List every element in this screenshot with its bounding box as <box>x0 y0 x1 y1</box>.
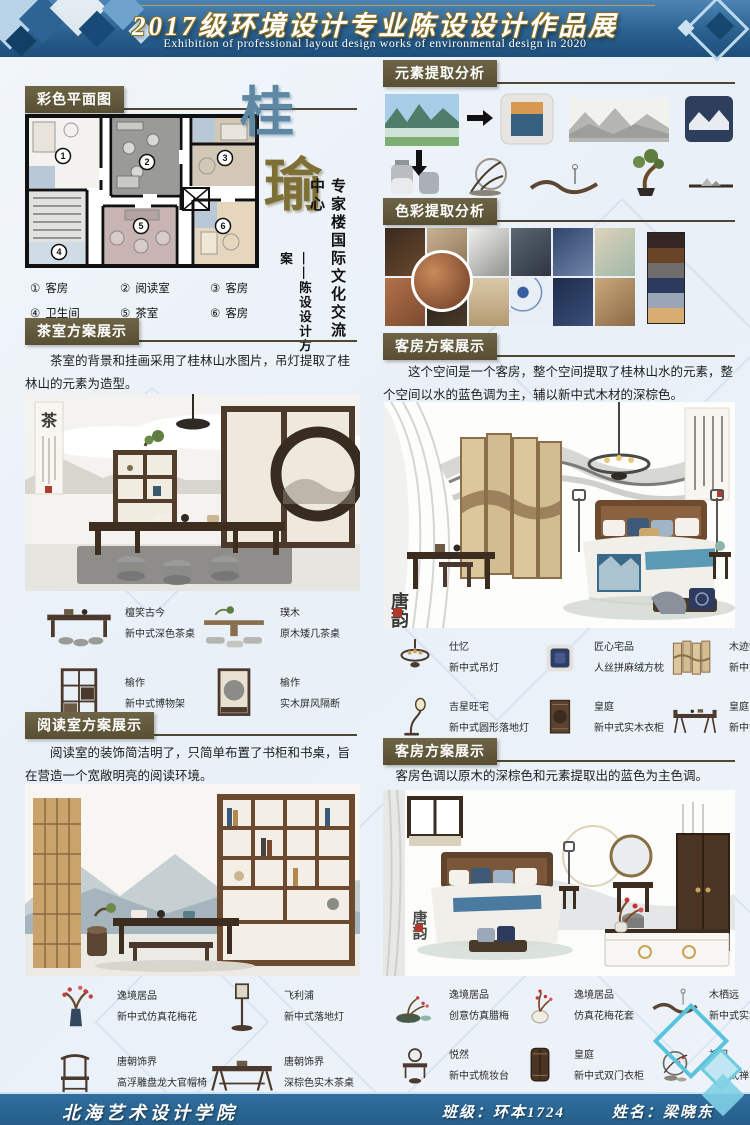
furniture-brand: 皇庭 <box>574 1045 644 1066</box>
furniture-brand: 匠心宅品 <box>594 637 664 658</box>
poster-page: 2017级环境设计专业陈设设计作品展 Exhibition of profess… <box>0 0 750 1125</box>
section-tag: 客房方案展示 <box>383 738 497 765</box>
furniture-brand: 木迹制品 <box>729 637 750 658</box>
furniture-item: 仕忆 新中式吊灯 <box>388 634 529 682</box>
folding-screen-icon <box>668 634 722 682</box>
section-tag: 色彩提取分析 <box>383 198 497 225</box>
furniture-item: 匠心宅品 人丝拼麻绒方枕 <box>533 634 664 682</box>
furniture-name: 高浮雕盘龙大官帽椅 <box>117 1073 207 1094</box>
furniture-brand: 逸境居品 <box>574 985 634 1006</box>
furniture-name: 人丝拼麻绒方枕 <box>594 658 664 679</box>
furniture-item: 吉星旺宅 新中式圆形落地灯 <box>388 694 529 742</box>
furniture-brand: 吉星旺宅 <box>449 697 529 718</box>
section-tag: 阅读室方案展示 <box>25 712 154 739</box>
dresser-icon <box>388 1042 442 1090</box>
tea-scroll-char: 茶 <box>40 411 58 430</box>
furniture-item: 檀笑古今 新中式深色茶桌 <box>40 596 195 652</box>
room-number-5: 5 <box>138 221 143 231</box>
project-title-art: 桂 瑜 专家楼国际文化交流中心 ——陈设设计方案 <box>238 60 358 350</box>
legend-item: ②阅读室 <box>120 280 210 296</box>
palette-swatch <box>648 263 684 278</box>
furniture-brand: 木栖远 <box>709 985 750 1006</box>
furniture-name: 深棕色实木茶桌 <box>284 1073 354 1094</box>
furniture-name: 仿真花梅花套 <box>574 1006 634 1027</box>
header-banner: 2017级环境设计专业陈设设计作品展 Exhibition of profess… <box>0 0 750 57</box>
guest-room-2-desc: 客房色调以原木的深棕色和元素提取出的蓝色为主色调。 <box>383 765 735 788</box>
tea-room-desc: 茶室的背景和挂画采用了桂林山水图片，吊灯提取了桂林山的元素为造型。 <box>25 350 360 396</box>
wardrobe-round-icon <box>533 694 587 742</box>
section-guest-room-2: 客房方案展示 <box>383 738 735 764</box>
footer-name: 姓名：梁晓东 <box>612 1101 714 1122</box>
furniture-item: 皇庭 新中式实木衣柜 <box>533 694 664 742</box>
tea-room-rendering: 茶 <box>25 394 360 596</box>
dark-tea-table-icon <box>40 596 118 652</box>
furniture-name: 新中式圆形落地灯 <box>449 718 529 739</box>
section-tag: 客房方案展示 <box>383 333 497 360</box>
palette-swatch <box>648 233 684 248</box>
footer-class: 班级：环本1724 <box>442 1101 565 1122</box>
section-guest-room-1: 客房方案展示 <box>383 333 735 359</box>
tea-room-furniture: 檀笑古今 新中式深色茶桌 璞木 原木矮几茶桌 榆作 新中式博物架 <box>40 596 350 722</box>
color-palette <box>647 232 685 324</box>
furniture-item: 皇庭 新中式书桌 <box>668 694 750 742</box>
floor-lamp-icon <box>207 980 277 1034</box>
low-tea-table-icon <box>195 596 273 652</box>
furniture-brand: 榆作 <box>280 673 340 694</box>
furniture-name: 新中式实木衣柜 <box>594 718 664 739</box>
square-pillow-icon <box>533 634 587 682</box>
furniture-brand: 璞木 <box>280 603 340 624</box>
collage-circle-inset <box>411 250 473 312</box>
furniture-name: 新中式梳妆台 <box>449 1066 509 1087</box>
plum-pot-icon <box>513 982 567 1030</box>
section-element-analysis: 元素提取分析 <box>383 60 735 86</box>
furniture-item: 逸境居品 创意仿真腊梅 <box>388 982 509 1030</box>
furniture-name: 新中式落地灯 <box>284 1007 344 1028</box>
ink-mountain-art <box>569 98 669 147</box>
ceramic-jars <box>385 160 447 201</box>
furniture-brand: 皇庭 <box>594 697 664 718</box>
furniture-brand: 唐朝饰界 <box>117 1052 207 1073</box>
guilin-landscape-photo <box>385 94 459 151</box>
footer-bar: 北海艺术设计学院 班级：环本1724 姓名：梁晓东 <box>0 1092 750 1125</box>
poster-subtitle: Exhibition of professional layout design… <box>0 36 750 51</box>
furniture-name: 新中式书桌 <box>729 718 750 739</box>
furniture-item: 逸境居品 新中式仿真花梅花 <box>40 980 207 1034</box>
branch-sculpture <box>461 154 517 201</box>
furniture-brand: 榆作 <box>125 673 185 694</box>
palette-swatch <box>648 248 684 263</box>
furniture-name: 新中式双门衣柜 <box>574 1066 644 1087</box>
reading-room-rendering <box>25 784 360 981</box>
furniture-name: 新中式实木吊灯 <box>709 1006 750 1027</box>
guest-room-2-rendering: 唐韵 <box>383 790 735 981</box>
room-number-4: 4 <box>56 247 61 257</box>
section-color-analysis: 色彩提取分析 <box>383 198 735 224</box>
pendant-lamp-icon <box>388 634 442 682</box>
furniture-name: 新中式深色茶桌 <box>125 624 195 645</box>
furniture-brand: 檀笑古今 <box>125 603 195 624</box>
reading-room-furniture: 逸境居品 新中式仿真花梅花 飞利浦 新中式落地灯 唐朝饰界 <box>40 980 350 1100</box>
arrow-right-icon <box>467 110 493 126</box>
color-analysis-board <box>385 228 735 330</box>
guest-room-1-desc: 这个空间是一个客房，整个空间提取了桂林山水的元素，整个空间以水的蓝色调为主，辅以… <box>383 361 735 407</box>
furniture-name: 新中式楠木屏风 <box>729 658 750 679</box>
furniture-brand: 悦然 <box>449 1045 509 1066</box>
furniture-name: 创意仿真腊梅 <box>449 1006 509 1027</box>
furniture-brand: 飞利浦 <box>284 986 344 1007</box>
round-floor-lamp-icon <box>388 694 442 742</box>
printed-pillow <box>499 92 555 151</box>
shelf-ornament <box>687 172 735 195</box>
guest-room-1-furniture: 仕忆 新中式吊灯 匠心宅品 人丝拼麻绒方枕 木迹制品 新中式楠木屏风 <box>388 634 736 742</box>
section-tea-room: 茶室方案展示 <box>25 318 357 344</box>
furniture-brand: 唐朝饰界 <box>284 1052 354 1073</box>
palette-swatch <box>648 308 684 323</box>
furniture-brand: 逸境居品 <box>449 985 509 1006</box>
footer-school: 北海艺术设计学院 <box>62 1099 238 1125</box>
room-number-2: 2 <box>144 157 149 167</box>
floor-plan: 1 2 3 4 5 6 <box>25 114 259 277</box>
palette-swatch <box>648 278 684 293</box>
furniture-item: 飞利浦 新中式落地灯 <box>207 980 354 1034</box>
plum-vase-icon <box>40 980 110 1034</box>
room-number-6: 6 <box>220 221 225 231</box>
furniture-item: 璞木 原木矮几茶桌 <box>195 596 350 652</box>
furniture-item: 悦然 新中式梳妆台 <box>388 1042 509 1090</box>
furniture-brand: 逸境居品 <box>117 986 197 1007</box>
wave-ornament <box>529 162 599 201</box>
furniture-name: 新中式仿真花梅花 <box>117 1007 197 1028</box>
furniture-brand: 仕忆 <box>449 637 499 658</box>
section-tag: 彩色平面图 <box>25 86 124 113</box>
navy-pillow <box>683 94 735 149</box>
two-door-cabinet-icon <box>513 1042 567 1090</box>
reading-room-desc: 阅读室的装饰简洁明了，只简单布置了书柜和书桌，旨在营造一个宽敞明亮的阅读环境。 <box>25 742 360 788</box>
room-number-1: 1 <box>60 151 65 161</box>
furniture-name: 新中式吊灯 <box>449 658 499 679</box>
guest-room-1-rendering: 唐韵 <box>383 402 735 633</box>
floor-plan-drawing: 1 2 3 4 5 6 <box>25 114 259 272</box>
palette-swatch <box>648 293 684 308</box>
title-char-gui: 桂 <box>240 68 294 147</box>
furniture-brand: 皇庭 <box>729 697 750 718</box>
furniture-item: 逸境居品 仿真花梅花套 <box>513 982 644 1030</box>
writing-desk-icon <box>668 694 722 742</box>
bonsai-tree <box>615 148 671 201</box>
furniture-item: 木迹制品 新中式楠木屏风 <box>668 634 750 682</box>
section-tag: 元素提取分析 <box>383 60 497 87</box>
section-reading-room: 阅读室方案展示 <box>25 712 357 738</box>
creative-plum-icon <box>388 982 442 1030</box>
room-number-3: 3 <box>222 153 227 163</box>
element-analysis-board <box>383 92 735 196</box>
section-tag: 茶室方案展示 <box>25 318 139 345</box>
furniture-name: 原木矮几茶桌 <box>280 624 340 645</box>
legend-item: ①客房 <box>30 280 120 296</box>
furniture-item: 皇庭 新中式双门衣柜 <box>513 1042 644 1090</box>
